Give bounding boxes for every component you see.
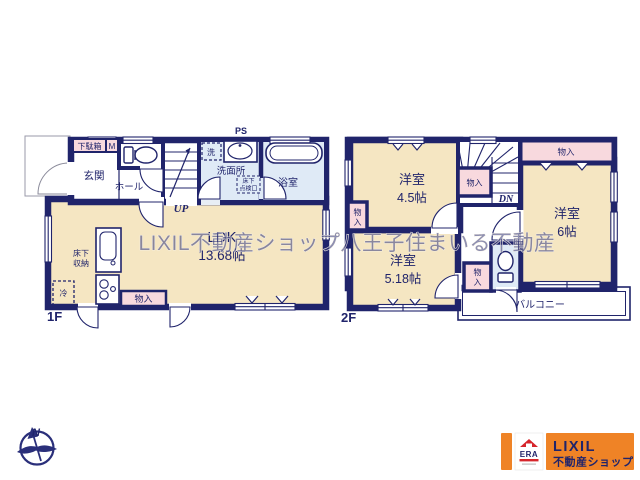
washroom-label: 洗面所 <box>217 165 246 177</box>
shoe-cabinet-label: 下駄箱 <box>78 141 102 151</box>
closet-left-label-1: 物 <box>354 207 362 217</box>
logo-brand-label: LIXIL <box>553 439 596 455</box>
toilet-icon-1f <box>124 147 157 163</box>
bath-label: 浴室 <box>278 176 298 189</box>
logo-orange-bar <box>501 433 512 470</box>
exterior-door-arc <box>170 307 190 327</box>
room-4-5-size: 4.5帖 <box>397 190 427 205</box>
meter-label: M <box>109 142 116 151</box>
kitchen-counter <box>96 228 121 304</box>
entrance-porch <box>25 136 70 196</box>
closet-1f-label: 物入 <box>134 293 152 304</box>
compass-north-label: N <box>32 427 41 439</box>
room-4-5-label: 洋室 <box>399 172 425 187</box>
era-fine-print <box>522 464 536 465</box>
floor1-label: 1F <box>47 309 62 324</box>
era-underline <box>520 459 539 461</box>
room-6-size: 6帖 <box>557 224 576 239</box>
entrance-opening <box>67 162 75 195</box>
bathtub-icon <box>266 143 322 163</box>
compass: N <box>17 427 57 465</box>
floorplan-page: 下駄箱 M PS 玄関 ホール 洗 洗面所 床下 点検口 浴室 UP LDK 1… <box>0 0 640 480</box>
closet-stairs-label: 物入 <box>467 178 483 188</box>
brand-logo: ERA LIXIL 不動産ショップ <box>501 433 634 470</box>
underfloor-label-2: 収納 <box>73 258 89 268</box>
room-6 <box>520 160 614 285</box>
logo-brand-sub-label: 不動産ショップ <box>553 455 634 469</box>
exterior-door-arc <box>77 307 98 328</box>
closet-top-right-label: 物入 <box>557 147 575 157</box>
room-6-label: 洋室 <box>554 206 580 221</box>
ps-label: PS <box>235 126 247 136</box>
fridge-label: 冷 <box>60 288 68 298</box>
hatch-label-1: 床下 <box>242 177 254 185</box>
toilet-icon-2f <box>498 252 513 283</box>
vanity-sink <box>224 141 257 162</box>
era-house-window <box>526 444 532 448</box>
entrance-label: 玄関 <box>84 169 105 182</box>
closet-left-label-2: 入 <box>354 218 362 227</box>
laundry-label: 洗 <box>207 147 215 157</box>
room-5-18-size: 5.18帖 <box>385 271 422 286</box>
closet-bottom-label-2: 入 <box>474 278 482 287</box>
hatch-label-2: 点検口 <box>239 185 257 193</box>
balcony-label: バルコニー <box>515 299 565 311</box>
floorplan-drawing: 下駄箱 M PS 玄関 ホール 洗 洗面所 床下 点検口 浴室 UP LDK 1… <box>0 0 640 480</box>
closet-bottom-label-1: 物 <box>474 267 482 277</box>
room-5-18-label: 洋室 <box>390 253 416 268</box>
floor1-plan: 下駄箱 M PS 玄関 ホール 洗 洗面所 床下 点検口 浴室 UP LDK 1… <box>25 126 329 328</box>
stairs-down-label: DN <box>498 194 514 205</box>
floor2-plan: 洋室 4.5帖 洋室 6帖 洋室 5.18帖 物入 物入 物 入 物 入 DN … <box>341 137 630 325</box>
underfloor-label-1: 床下 <box>73 248 89 258</box>
hall-label: ホール <box>115 182 144 193</box>
era-label: ERA <box>520 450 538 459</box>
watermark-text: LIXIL不動産ショップ八王子住まいる不動産 <box>138 232 555 255</box>
floor2-label: 2F <box>341 310 356 325</box>
kitchen-sink <box>100 232 116 260</box>
stairs-up-label: UP <box>174 203 189 215</box>
